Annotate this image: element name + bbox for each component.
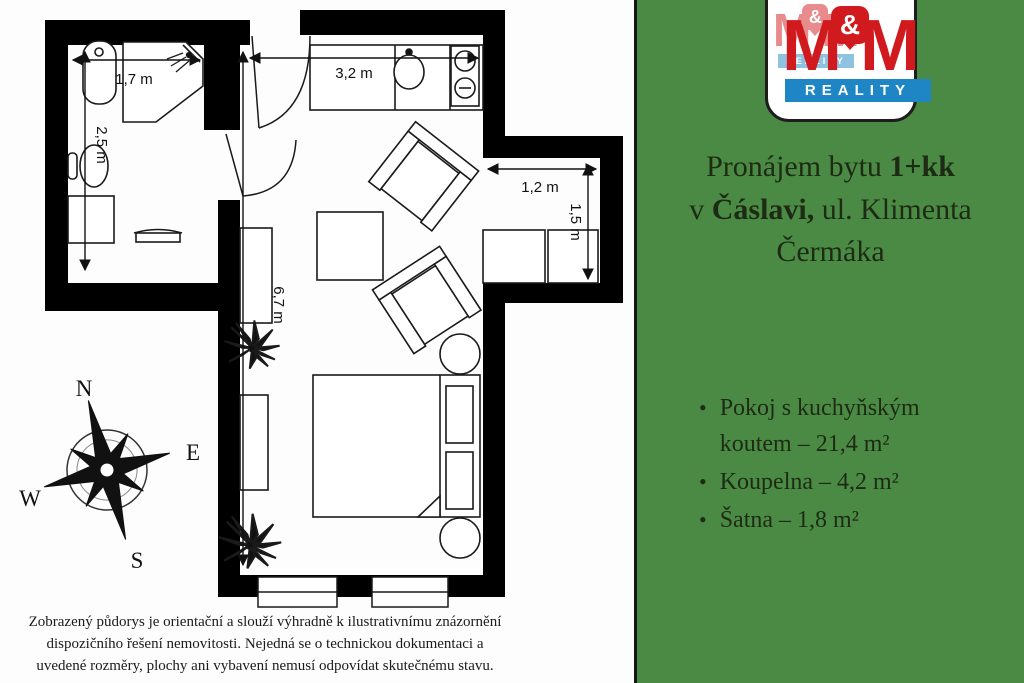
disclaimer-line: dispozičního řešení nemovitosti. Nejedná… [5, 634, 525, 656]
title-line-2: v Čáslavi, ul. Klimenta [637, 189, 1024, 232]
compass-w: W [19, 486, 41, 511]
pillow [446, 386, 473, 443]
room-list-item: • Pokoj s kuchyňským koutem – 21,4 m² [699, 390, 920, 462]
washing-machine [68, 196, 114, 243]
kitchen-sink [394, 55, 424, 89]
entrance-door [252, 36, 310, 128]
disclaimer-line: Zobrazený půdorys je orientační a slouží… [5, 612, 525, 634]
compass-s: S [131, 548, 144, 573]
room-list: • Pokoj s kuchyňským koutem – 21,4 m² • … [699, 390, 920, 540]
info-panel: M & M REALITY M & M REALITY Pronájem [634, 0, 1024, 683]
bullet-icon: • [699, 390, 707, 425]
disclaimer-line: uvedené rozměry, plochy ani vybavení nem… [5, 656, 525, 678]
side-table [440, 518, 480, 558]
cabinet [240, 395, 268, 490]
floor-plan: 1,7 m 2,5 m 3,2 m 6,7 m 1,2 m 1,5 m [0, 0, 634, 614]
pillow [446, 452, 473, 509]
room-list-item: • Koupelna – 4,2 m² [699, 464, 920, 500]
armchair [369, 122, 479, 231]
bathroom-door [226, 134, 296, 196]
dim-niche-width: 1,2 m [521, 179, 559, 196]
disclaimer: Zobrazený půdorys je orientační a slouží… [5, 612, 525, 677]
side-table [440, 334, 480, 374]
bench [134, 230, 182, 243]
dim-niche-height: 1,5 m [567, 203, 584, 241]
closet-desk [483, 230, 545, 283]
compass-rose: N E W S [19, 376, 200, 573]
dim-bath-width: 1,7 m [115, 71, 153, 88]
title-line-3: Čermáka [637, 231, 1024, 274]
bullet-icon: • [699, 502, 707, 537]
flyer: 1,7 m 2,5 m 3,2 m 6,7 m 1,2 m 1,5 m [0, 0, 1024, 683]
ampersand-pin-icon: & [831, 6, 869, 44]
compass-n: N [76, 376, 93, 401]
listing-title: Pronájem bytu 1+kk v Čáslavi, ul. Klimen… [637, 146, 1024, 274]
cabinet [240, 228, 272, 323]
bullet-icon: • [699, 464, 707, 499]
table [317, 212, 383, 280]
dim-bath-height: 2,5 m [93, 126, 110, 164]
room-list-item: • Šatna – 1,8 m² [699, 502, 920, 538]
dim-room-height: 6,7 m [270, 286, 287, 324]
dim-kitchen: 3,2 m [335, 65, 373, 82]
mm-reality-logo: M & M REALITY [785, 16, 931, 102]
compass-e: E [186, 440, 200, 465]
bed [313, 375, 480, 517]
title-line-1: Pronájem bytu 1+kk [637, 146, 1024, 189]
reality-banner: REALITY [785, 79, 931, 102]
